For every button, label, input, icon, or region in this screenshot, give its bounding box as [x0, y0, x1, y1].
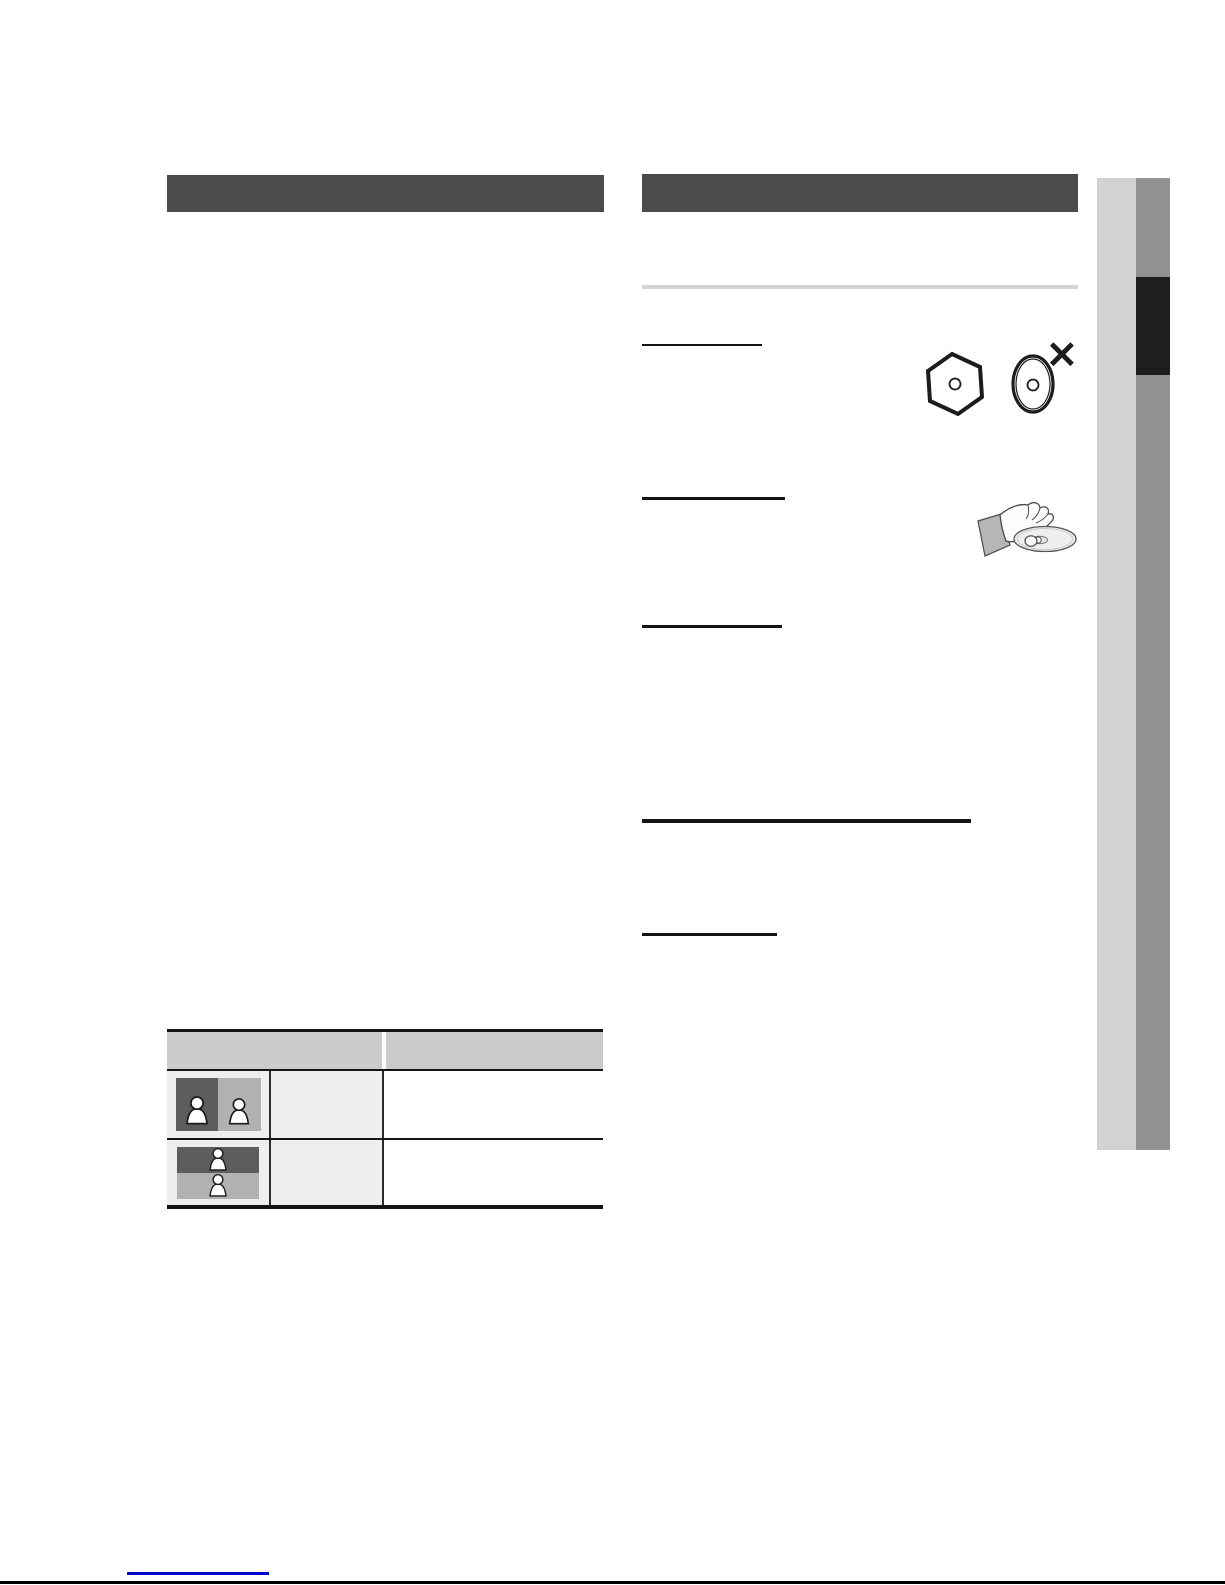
right-section-header-bar	[642, 174, 1078, 212]
table-cell-description	[384, 1140, 603, 1205]
heading-underline-1	[642, 344, 762, 346]
person-icon	[206, 1173, 230, 1198]
table-header-row	[167, 1029, 603, 1071]
heading-underline-3	[642, 625, 782, 628]
heading-underline-5	[642, 933, 777, 936]
sidebar-tab-dark	[1136, 178, 1170, 1150]
table-row	[167, 1140, 603, 1209]
table-header-right	[386, 1032, 603, 1069]
manual-page: ✕	[0, 0, 1225, 1585]
table-cell-figure	[167, 1140, 271, 1205]
person-icon	[206, 1147, 230, 1172]
side-by-side-format-figure	[176, 1078, 261, 1131]
thumb-shape	[1025, 536, 1037, 546]
footer-link[interactable]	[127, 1572, 269, 1575]
table-header-left	[167, 1032, 382, 1069]
top-and-bottom-format-figure	[177, 1147, 259, 1199]
section-divider-line	[642, 285, 1078, 289]
frame-top	[177, 1147, 259, 1173]
frame-right	[218, 1078, 261, 1131]
table-cell-label	[271, 1071, 384, 1138]
table-cell-description	[384, 1071, 603, 1138]
page-bottom-edge	[0, 1581, 1225, 1584]
hexagon-disc-icon	[928, 354, 982, 414]
odd-shaped-discs-figure: ✕	[920, 347, 1085, 419]
table-cell-figure	[167, 1071, 271, 1138]
person-icon	[183, 1094, 211, 1127]
sidebar-tab-light	[1097, 178, 1136, 1150]
table-cell-label	[271, 1140, 384, 1205]
hand-holding-disc-figure	[975, 501, 1078, 559]
heading-underline-4	[642, 819, 971, 823]
frame-left	[176, 1078, 219, 1131]
frame-bottom	[177, 1173, 259, 1199]
hand-disc-graphic	[975, 501, 1078, 559]
heading-underline-2	[642, 497, 785, 500]
sidebar-active-chapter-tab	[1136, 277, 1170, 375]
prohibited-cross-icon: ✕	[1046, 337, 1078, 375]
formats-table	[167, 1029, 603, 1209]
table-row	[167, 1071, 603, 1140]
person-icon	[226, 1096, 252, 1127]
left-section-header-bar	[167, 175, 604, 212]
